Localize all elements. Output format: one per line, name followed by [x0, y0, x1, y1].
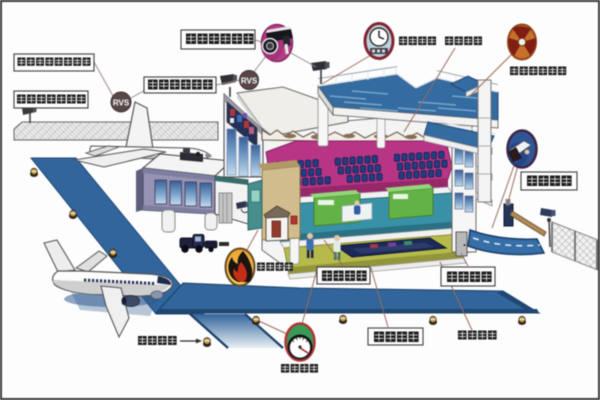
svg-text:RVS: RVS	[241, 77, 258, 86]
svg-text:RVS: RVS	[113, 99, 130, 108]
